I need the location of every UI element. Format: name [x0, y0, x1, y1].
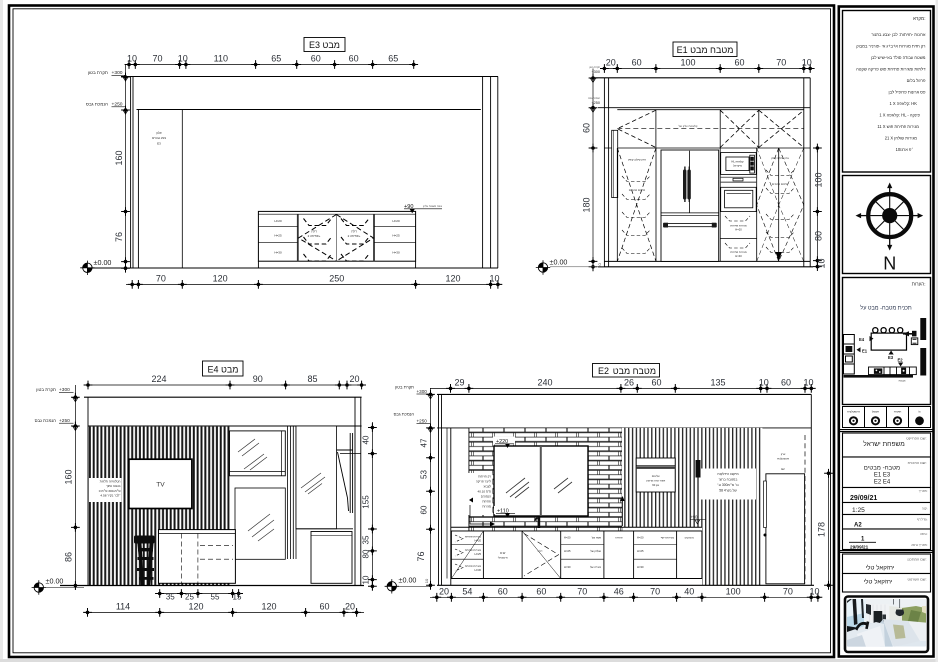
svg-text:76: 76: [114, 232, 124, 242]
svg-text:240: 240: [537, 377, 552, 387]
svg-text:10: 10: [362, 575, 371, 584]
svg-text:H=20: H=20: [564, 536, 571, 540]
svg-text:שולחן של: שולחן של: [590, 549, 601, 553]
svg-text:פס ארונות פרופיל לבן: פס ארונות פרופיל לבן: [889, 90, 926, 95]
svg-text:דלתות ומגירות פתיחת פוש פריקה: דלתות ומגירות פתיחת פוש פריקה שקטה: [856, 67, 926, 72]
svg-text:H=25: H=25: [392, 234, 400, 238]
svg-text:H=30: H=30: [637, 565, 644, 569]
svg-text:שם השרטט:: שם השרטט:: [907, 578, 926, 582]
svg-text:60: 60: [420, 505, 429, 514]
svg-text:1 X קלאפה: HL - פינקה: 1 X קלאפה: HL - פינקה: [879, 113, 920, 118]
svg-text:20: 20: [345, 601, 355, 611]
svg-text:120: 120: [213, 273, 228, 283]
svg-text:90: 90: [253, 374, 263, 384]
svg-text:מגירות דחף: מגירות דחף: [661, 537, 674, 540]
svg-text:29/09/21: 29/09/21: [850, 545, 869, 550]
svg-text:מטבח מבט E1: מטבח מבט E1: [677, 45, 734, 55]
svg-text:35: 35: [362, 535, 371, 544]
svg-text:יחזקאל טלי: יחזקאל טלי: [866, 564, 895, 572]
svg-text:פתיחת: פתיחת: [482, 500, 491, 504]
svg-text:±0.00: ±0.00: [399, 576, 417, 585]
svg-text:46: 46: [614, 586, 624, 596]
svg-text:שם המתכנן:: שם המתכנן:: [908, 558, 927, 562]
svg-text:86: 86: [64, 552, 74, 562]
svg-text:54: 54: [462, 586, 472, 596]
svg-text:10׳פ ארגז: 10׳פ ארגז: [896, 147, 914, 152]
svg-text:+250: +250: [591, 101, 600, 105]
svg-text:224: 224: [151, 374, 166, 384]
svg-text:פתיחה 2+: פתיחה 2+: [348, 234, 361, 238]
svg-text:0 ס״מ-300 ס״מ: 0 ס״מ-300 ס״מ: [99, 489, 121, 493]
svg-text:מטבח- מבטים: מטבח- מבטים: [864, 466, 900, 472]
svg-text:100: 100: [726, 586, 741, 596]
svg-text:H=30: H=30: [475, 568, 482, 572]
svg-text:40: 40: [362, 435, 371, 444]
svg-text:±0.00: ±0.00: [94, 258, 112, 267]
svg-text:26: 26: [624, 377, 634, 387]
svg-text:60: 60: [536, 586, 546, 596]
svg-text:11 X מגירות פתיחת פוש: 11 X מגירות פתיחת פוש: [877, 124, 919, 129]
svg-text:תאורה: תאורה: [894, 410, 902, 414]
svg-text:35: 35: [166, 593, 175, 602]
svg-text:אינטגרלי: אינטגרלי: [498, 556, 508, 560]
svg-text:180: 180: [582, 197, 592, 212]
svg-text:גו׳ ס״מ300 גו׳: גו׳ ס״מ300 גו׳: [717, 483, 739, 487]
svg-text:10: 10: [802, 58, 812, 68]
svg-text:מיקרוגל: מיקרוגל: [733, 164, 742, 168]
svg-text:תאריך:: תאריך:: [919, 489, 928, 493]
svg-text:שם התכנית:: שם התכנית:: [908, 461, 927, 465]
svg-text:משטח עבודה סולד באי-שיש לבן: משטח עבודה סולד באי-שיש לבן: [871, 55, 926, 60]
svg-text:H=25: H=25: [637, 549, 644, 553]
svg-text:דלת: דלת: [351, 230, 357, 234]
svg-text:1:25: 1:25: [852, 507, 865, 514]
svg-text:N: N: [883, 254, 896, 274]
svg-text:155: 155: [362, 495, 371, 509]
svg-text:הערות:: הערות:: [912, 282, 926, 287]
svg-text:110: 110: [214, 54, 228, 64]
svg-text:60: 60: [349, 54, 359, 64]
svg-text:מגירה של: מגירה של: [590, 565, 601, 569]
svg-text:ארונות -חזיתות: לבן -צבע בתנור: ארונות -חזיתות: לבן -צבע בתנור: [871, 32, 926, 37]
svg-text:21 X מגירות שולחן: 21 X מגירות שולחן: [885, 136, 917, 141]
svg-text:פסח של: פסח של: [592, 536, 602, 540]
svg-text:גודל דף:: גודל דף:: [917, 518, 928, 522]
svg-text:H=20: H=20: [392, 219, 400, 223]
svg-text:במטבח בתוך: במטבח בתוך: [719, 478, 738, 482]
svg-text:E2: E2: [898, 358, 904, 363]
svg-text:מגירות פתיחת: מגירות פתיחת: [465, 565, 481, 568]
svg-text:80: 80: [814, 231, 824, 241]
svg-text:65: 65: [388, 54, 398, 64]
svg-text:פרזול בלום: פרזול בלום: [907, 78, 926, 83]
svg-text:60: 60: [632, 58, 642, 68]
svg-text:10: 10: [127, 54, 137, 64]
svg-text:60: 60: [781, 377, 791, 387]
svg-text:40: 40: [684, 586, 694, 596]
svg-text:H=20: H=20: [735, 228, 742, 232]
svg-text:חשמל: חשמל: [872, 410, 879, 414]
svg-text:E1 E3: E1 E3: [874, 473, 891, 479]
svg-text:יחזקאל טלי: יחזקאל טלי: [864, 578, 893, 586]
svg-text:TV: TV: [156, 482, 165, 489]
svg-text:1 X קלאפה: HK: 1 X קלאפה: HK: [889, 101, 917, 106]
svg-text:H=20: H=20: [475, 539, 482, 543]
svg-text:E3: E3: [888, 355, 894, 360]
svg-text:E3: E3: [157, 142, 161, 146]
svg-text:160: 160: [114, 150, 124, 165]
svg-text:מקרא:: מקרא:: [913, 16, 925, 21]
svg-text:70: 70: [650, 586, 660, 596]
svg-text:תקרת בטון: תקרת בטון: [395, 384, 414, 389]
svg-text:114: 114: [116, 601, 130, 611]
svg-text:הנמוכים: הנמוכים: [481, 495, 491, 499]
svg-text:רק חזית מגירות א+ב+ג אי -פורני: רק חזית מגירות א+ב+ג אי -פורניר במבוק: [856, 44, 925, 49]
svg-text:מגירות פתיחת: מגירות פתיחת: [730, 225, 746, 228]
svg-text:קנה:: קנה:: [922, 507, 928, 511]
svg-text:תקרת בטון: תקרת בטון: [36, 387, 56, 392]
svg-text:מיקום הידלקות: מיקום הידלקות: [717, 472, 739, 476]
svg-text:לייצר פריקה: לייצר פריקה: [476, 480, 492, 484]
svg-text:H=40: H=40: [735, 254, 742, 258]
svg-text:פתיחה 2+: פתיחה 2+: [308, 234, 321, 238]
svg-text:H=30: H=30: [392, 251, 400, 255]
svg-text:H=30: H=30: [274, 251, 282, 255]
svg-text:10: 10: [817, 258, 827, 268]
svg-text:תאריך גרסה:: תאריך גרסה:: [911, 543, 927, 547]
svg-text:ארון שילוב קופץ: ארון שילוב קופץ: [628, 158, 646, 162]
svg-text:H=20: H=20: [637, 536, 644, 540]
svg-text:100: 100: [814, 172, 824, 187]
svg-text:מדפים פנימיים: מדפים פנימיים: [772, 183, 789, 186]
svg-text:70: 70: [776, 58, 786, 68]
svg-text:אפור כהה מרקיע: אפור כהה מרקיע: [646, 480, 665, 483]
svg-text:±0.00: ±0.00: [46, 577, 64, 586]
svg-text:תכנית מטבח- מבט על: תכנית מטבח- מבט על: [860, 305, 912, 312]
svg-text:100: 100: [680, 58, 695, 68]
svg-text:15: 15: [233, 593, 242, 602]
svg-text:דלת: דלת: [311, 230, 317, 234]
svg-text:60: 60: [651, 377, 661, 387]
svg-text:A2: A2: [854, 523, 862, 529]
svg-text:10: 10: [803, 377, 813, 387]
svg-text:הטלוויזיה תלויות: הטלוויזיה תלויות: [100, 480, 121, 484]
svg-text:תקרת בטון: תקרת בטון: [589, 66, 600, 69]
svg-text:H=25: H=25: [564, 549, 571, 553]
svg-text:ארון שילוב קופץ: ארון שילוב קופץ: [771, 156, 789, 160]
svg-text:60: 60: [311, 54, 321, 64]
svg-text:135: 135: [710, 377, 725, 387]
svg-text:דלת: דלת: [538, 549, 543, 553]
svg-text:הנמכת גבס: הנמכת גבס: [86, 101, 108, 106]
svg-text:55: 55: [211, 593, 220, 602]
svg-text:160: 160: [64, 469, 74, 484]
svg-text:הנמכת גבס: הנמכת גבס: [35, 418, 57, 423]
svg-text:E4: E4: [859, 337, 865, 342]
svg-text:53: 53: [420, 470, 429, 479]
svg-text:±0.00: ±0.00: [550, 258, 568, 267]
svg-text:80: 80: [362, 549, 371, 558]
svg-text:HL קלאפה: HL קלאפה: [731, 160, 744, 164]
svg-text:אינסטלציה: אינסטלציה: [777, 457, 789, 461]
svg-text:60: 60: [498, 586, 508, 596]
svg-text:70: 70: [577, 586, 587, 596]
svg-text:E2: E2: [598, 366, 609, 376]
svg-text:מבט E4: מבט E4: [208, 365, 239, 375]
svg-text:מבטח: מבטח: [899, 380, 906, 383]
svg-text:גוון 60: גוון 60: [652, 483, 660, 487]
svg-text:קלאפות עליון של: קלאפות עליון של: [679, 124, 698, 128]
svg-text:4.58 ־לבר בקיר: 4.58 ־לבר בקיר: [100, 494, 121, 498]
svg-text:178: 178: [817, 522, 827, 537]
svg-text:בגובה נמוך: בגובה נמוך: [106, 484, 121, 488]
svg-text:מדפים פנימיים: מדפים פנימיים: [629, 189, 646, 192]
svg-text:120: 120: [261, 601, 276, 611]
svg-text:25: 25: [185, 593, 194, 602]
svg-text:85: 85: [307, 374, 317, 384]
svg-text:משפחת ישראל: משפחת ישראל: [863, 440, 905, 448]
svg-text:70: 70: [156, 273, 166, 283]
svg-text:76: 76: [416, 551, 426, 561]
svg-text:אינסטלציה: אינסטלציה: [847, 410, 860, 414]
svg-text:60: 60: [734, 58, 744, 68]
svg-text:20: 20: [606, 58, 616, 68]
svg-text:250: 250: [329, 273, 344, 283]
svg-text:+300: +300: [417, 389, 428, 394]
svg-text:E2 E4: E2 E4: [874, 480, 891, 486]
svg-text:H=20: H=20: [274, 219, 282, 223]
svg-text:שם הפרויקט:: שם הפרויקט:: [906, 437, 926, 441]
svg-text:תקרת בטון: תקרת בטון: [88, 70, 108, 75]
svg-text:10: 10: [809, 586, 819, 596]
svg-text:מעמקים: מעמקים: [685, 537, 694, 540]
svg-text:רק חזיתות: רק חזיתות: [478, 475, 491, 479]
svg-text:E1: E1: [862, 348, 868, 353]
svg-text:70: 70: [783, 586, 793, 596]
svg-text:אלון: אלון: [157, 131, 162, 135]
svg-text:E2: E2: [781, 467, 785, 471]
svg-text:לצבוע: לצבוע: [483, 485, 491, 489]
svg-text:H=30: H=30: [564, 565, 571, 569]
svg-text:10: 10: [489, 273, 499, 283]
svg-text:עליונים: עליונים: [652, 474, 660, 478]
svg-text:מגירות: מגירות: [482, 505, 491, 509]
svg-text:60: 60: [582, 123, 592, 133]
svg-text:20: 20: [439, 586, 449, 596]
svg-text:מגירות פתיחת: מגירות פתיחת: [465, 536, 481, 539]
svg-text:מבט E3: מבט E3: [309, 40, 340, 50]
svg-text:גובה משטח עליון: גובה משטח עליון: [423, 204, 443, 208]
svg-text:+90: +90: [690, 515, 698, 520]
svg-text:10: 10: [424, 578, 429, 583]
svg-text:120: 120: [445, 273, 460, 283]
svg-text:+250: +250: [417, 419, 428, 424]
svg-text:מגירות פתיחת: מגירות פתיחת: [730, 251, 746, 254]
svg-text:הנמכת גבס: הנמכת גבס: [588, 97, 600, 100]
svg-text:20: 20: [349, 374, 359, 384]
svg-text:מטבח מבט: מטבח מבט: [613, 366, 656, 376]
svg-text:10: 10: [178, 54, 188, 64]
svg-text:29/09/21: 29/09/21: [850, 495, 877, 502]
svg-text:פתיחה: פתיחה: [615, 537, 623, 540]
svg-text:60: 60: [319, 601, 329, 611]
svg-text:47: 47: [420, 438, 429, 447]
svg-text:65: 65: [271, 54, 281, 64]
svg-text:H=25: H=25: [274, 234, 282, 238]
svg-text:29: 29: [454, 377, 464, 387]
svg-text:מגירות פתיחת: מגירות פתיחת: [465, 549, 481, 552]
svg-text:10: 10: [759, 377, 769, 387]
svg-text:גרסה:: גרסה:: [920, 532, 928, 536]
svg-text:+300: +300: [591, 70, 600, 74]
svg-text:הנמכת גבס: הנמכת גבס: [394, 412, 415, 417]
svg-text:70: 70: [152, 54, 162, 64]
svg-text:ס"מ 40.10: ס"מ 40.10: [478, 490, 491, 494]
svg-text:120: 120: [188, 601, 203, 611]
svg-text:ארון: ארון: [781, 453, 786, 456]
svg-text:צבע גבהים: צבע גבהים: [152, 136, 166, 140]
svg-text:H=25: H=25: [475, 552, 482, 556]
svg-text:D.W: D.W: [500, 551, 506, 555]
svg-text:58 4של בקר: 58 4של בקר: [719, 489, 737, 493]
